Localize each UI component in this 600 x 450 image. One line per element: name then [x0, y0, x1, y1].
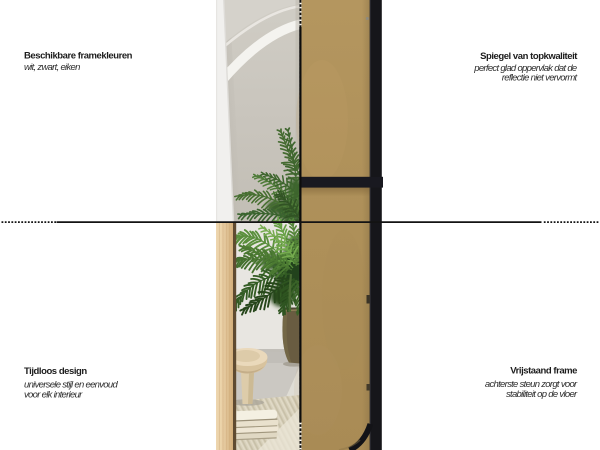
svg-text:stabiliteit op de vloer: stabiliteit op de vloer — [506, 389, 578, 400]
svg-text:wit, zwart, eiken: wit, zwart, eiken — [24, 62, 80, 73]
svg-text:voor elk interieur: voor elk interieur — [24, 389, 83, 400]
svg-text:Spiegel van topkwaliteit: Spiegel van topkwaliteit — [480, 51, 578, 62]
svg-text:Beschikbare framekleuren: Beschikbare framekleuren — [24, 51, 133, 62]
svg-text:Vrijstaand frame: Vrijstaand frame — [510, 366, 577, 377]
svg-text:reflectie niet vervormt: reflectie niet vervormt — [502, 73, 578, 84]
svg-text:Tijdloos design: Tijdloos design — [24, 366, 87, 377]
